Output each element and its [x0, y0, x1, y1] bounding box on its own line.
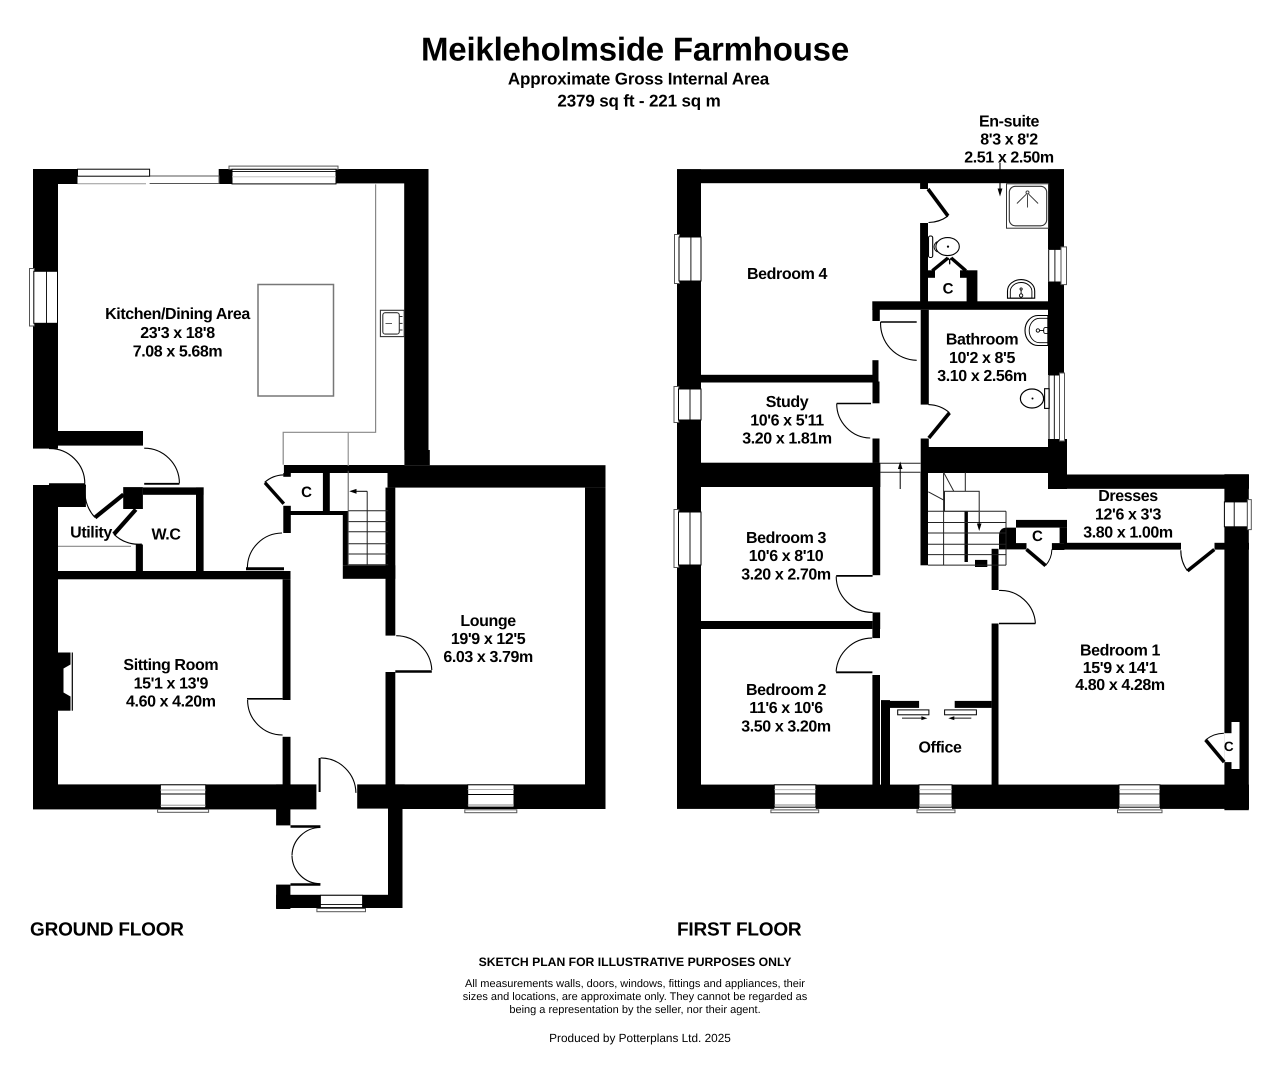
svg-text:7.08 x 5.68m: 7.08 x 5.68m — [133, 344, 223, 361]
svg-text:All measurements walls, doors,: All measurements walls, doors, windows, … — [465, 978, 805, 990]
svg-text:6.03 x 3.79m: 6.03 x 3.79m — [443, 649, 533, 666]
svg-text:C: C — [943, 281, 954, 298]
svg-text:Bedroom 3: Bedroom 3 — [746, 530, 826, 547]
svg-text:Bathroom: Bathroom — [946, 331, 1019, 348]
svg-text:Bedroom 1: Bedroom 1 — [1080, 642, 1160, 659]
svg-text:3.10 x 2.56m: 3.10 x 2.56m — [937, 368, 1027, 385]
svg-text:Meikleholmside Farmhouse: Meikleholmside Farmhouse — [421, 31, 849, 68]
svg-text:Office: Office — [919, 740, 962, 757]
svg-text:4.60 x 4.20m: 4.60 x 4.20m — [126, 693, 216, 710]
svg-text:Study: Study — [766, 394, 809, 411]
svg-text:Bedroom 4: Bedroom 4 — [747, 266, 827, 283]
svg-text:FIRST FLOOR: FIRST FLOOR — [677, 920, 802, 941]
svg-text:8'3 x 8'2: 8'3 x 8'2 — [980, 132, 1038, 149]
svg-text:15'9 x 14'1: 15'9 x 14'1 — [1083, 660, 1158, 677]
svg-text:23'3 x 18'8: 23'3 x 18'8 — [140, 325, 215, 342]
svg-text:10'6 x 5'11: 10'6 x 5'11 — [750, 412, 824, 429]
svg-text:SKETCH PLAN FOR ILLUSTRATIVE P: SKETCH PLAN FOR ILLUSTRATIVE PURPOSES ON… — [479, 955, 792, 969]
svg-text:C: C — [301, 484, 312, 501]
svg-text:W.C: W.C — [151, 527, 181, 544]
svg-text:being a representation by the: being a representation by the seller, no… — [509, 1004, 760, 1016]
svg-text:10'6 x 8'10: 10'6 x 8'10 — [749, 548, 824, 565]
svg-text:3.50 x 3.20m: 3.50 x 3.20m — [741, 718, 831, 735]
svg-text:4.80 x 4.28m: 4.80 x 4.28m — [1075, 677, 1165, 694]
svg-text:10'2 x 8'5: 10'2 x 8'5 — [949, 350, 1015, 367]
svg-text:Produced by Potterplans Ltd. 2: Produced by Potterplans Ltd. 2025 — [549, 1031, 731, 1045]
svg-text:Dresses: Dresses — [1098, 488, 1158, 505]
svg-text:C: C — [1224, 739, 1234, 754]
svg-text:3.20 x 2.70m: 3.20 x 2.70m — [741, 566, 831, 583]
svg-text:Bedroom 2: Bedroom 2 — [746, 682, 826, 699]
svg-text:C: C — [1032, 528, 1043, 545]
svg-text:sizes and locations, are appro: sizes and locations, are approximate onl… — [463, 991, 808, 1003]
svg-text:12'6 x 3'3: 12'6 x 3'3 — [1095, 507, 1161, 524]
svg-text:11'6 x 10'6: 11'6 x 10'6 — [749, 700, 823, 717]
svg-text:Kitchen/Dining Area: Kitchen/Dining Area — [105, 306, 250, 323]
svg-text:15'1 x 13'9: 15'1 x 13'9 — [134, 675, 209, 692]
svg-text:Sitting Room: Sitting Room — [123, 657, 218, 674]
svg-text:19'9 x 12'5: 19'9 x 12'5 — [451, 631, 526, 648]
svg-text:3.20 x 1.81m: 3.20 x 1.81m — [742, 431, 832, 448]
svg-text:Lounge: Lounge — [460, 613, 516, 630]
svg-text:2379 sq ft - 221 sq m: 2379 sq ft - 221 sq m — [557, 91, 720, 110]
svg-text:3.80 x 1.00m: 3.80 x 1.00m — [1083, 525, 1173, 542]
svg-text:Approximate Gross Internal Are: Approximate Gross Internal Area — [508, 70, 770, 89]
svg-text:2.51 x 2.50m: 2.51 x 2.50m — [964, 150, 1054, 167]
svg-text:En-suite: En-suite — [979, 114, 1039, 131]
svg-text:Utility: Utility — [70, 525, 112, 542]
svg-text:GROUND FLOOR: GROUND FLOOR — [30, 920, 184, 941]
